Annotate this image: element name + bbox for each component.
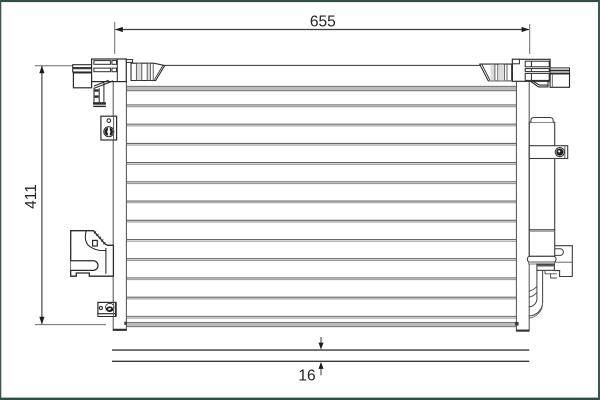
- svg-text:411: 411: [23, 184, 40, 209]
- svg-text:16: 16: [298, 368, 315, 385]
- svg-text:655: 655: [310, 14, 336, 31]
